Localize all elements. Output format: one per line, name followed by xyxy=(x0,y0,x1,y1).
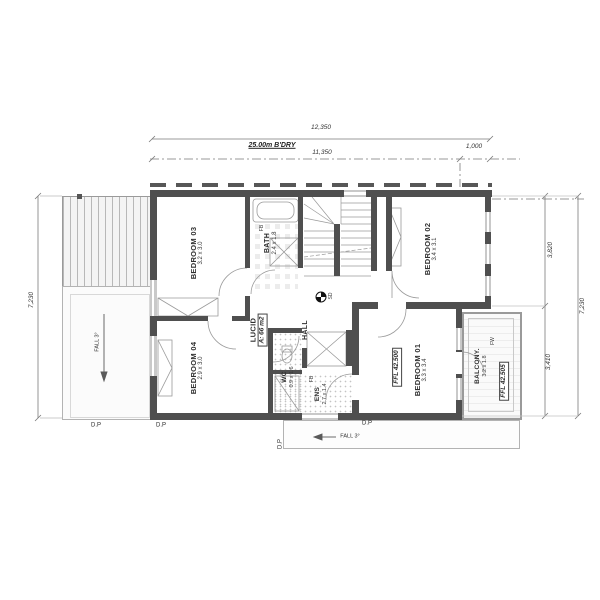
room-label-bedroom01: BEDROOM 01 3.3 x 3.4 xyxy=(413,344,429,397)
dim-top-inner-text: 11,350 xyxy=(312,149,331,157)
linework xyxy=(0,0,600,600)
bedroom04-size: 2.9 x 3.0 xyxy=(198,357,205,380)
wall-wc-right xyxy=(302,348,307,368)
dim-right-lower: 3,410 xyxy=(545,354,553,370)
window-top-stair xyxy=(344,190,366,197)
room-label-hall: HALL xyxy=(302,320,310,340)
bedroom02-name: BEDROOM 02 xyxy=(423,223,432,276)
balcony-note-label: FW xyxy=(490,337,496,345)
bedroom03-name: BEDROOM 03 xyxy=(189,227,198,280)
dim-right-total-text: 7,230 xyxy=(579,298,587,314)
ens-name: ENS xyxy=(314,387,322,401)
window-bedroom01-b xyxy=(456,378,462,400)
wall-ens-bedroom01-upper xyxy=(352,309,359,375)
downpipe-label-4: D.P xyxy=(277,439,284,449)
window-right-bedroom02-a xyxy=(485,212,491,232)
dim-top-offset: 1,000 xyxy=(466,143,482,151)
window-right-bedroom02-b xyxy=(485,244,491,264)
wall-bath-stair xyxy=(298,197,303,268)
ffl-balcony-text: FFL 42.505 xyxy=(499,361,509,400)
lucid-area-box: A: 66 m2 xyxy=(258,313,268,346)
downpipe-text-1: D.P xyxy=(91,422,101,429)
bath-fixture-label: FB xyxy=(259,225,265,231)
balcony-size: 3.2 x 1.8 xyxy=(482,355,489,376)
ens-fixture-label: FB xyxy=(309,376,315,382)
wall-stair-mid xyxy=(334,224,340,276)
deck-post xyxy=(77,194,82,199)
dim-right-upper: 3,820 xyxy=(547,242,555,258)
dim-top-total: 12,350 xyxy=(311,124,331,132)
ffl-balcony: FFL 42.505 xyxy=(499,361,509,400)
ffl-bedroom01: FFL 42.500 xyxy=(392,347,402,386)
wall-bedroom03-bedroom04-a xyxy=(150,316,208,321)
dim-top-offset-text: 1,000 xyxy=(466,143,482,151)
dim-right-upper-text: 3,820 xyxy=(547,242,555,258)
wc-name: WC xyxy=(281,371,289,382)
fall-bottom-text: FALL 3° xyxy=(340,434,359,441)
dim-left-total: 7,230 xyxy=(28,292,36,308)
wall-stair-right xyxy=(371,197,377,271)
wall-wc-top xyxy=(268,328,302,333)
smoke-detector-icon xyxy=(316,292,327,303)
bath-size: 2.4 x 1.8 xyxy=(273,231,280,254)
smoke-detector-label: SD xyxy=(328,293,334,300)
window-right-bedroom02-c xyxy=(485,276,491,296)
wall-ens-bedroom01-lower xyxy=(352,400,359,413)
room-label-balcony: BALCONY. 3.2 x 1.8 xyxy=(474,348,488,384)
fall-left-label: FALL 3° xyxy=(95,332,102,351)
bedroom01-size: 3.3 x 3.4 xyxy=(422,359,429,382)
fall-left-text: FALL 3° xyxy=(95,332,102,351)
ens-size: 2.7 x 1.4 xyxy=(322,383,329,404)
dim-boundary-text: 25.00m B'DRY xyxy=(248,142,295,150)
room-label-bath: BATH 2.4 x 1.8 xyxy=(264,231,280,254)
ffl-bedroom01-text: FFL 42.500 xyxy=(392,347,402,386)
dim-top-inner: 11,350 xyxy=(312,149,331,157)
fall-bottom-label: FALL 3° xyxy=(340,434,359,441)
bath-fixture-text: FB xyxy=(259,225,265,231)
bedroom03-size: 3.2 x 3.0 xyxy=(198,242,205,265)
downpipe-label-3: D.P xyxy=(362,420,372,427)
floor-plan: 12,350 25.00m B'DRY 11,350 1,000 7,230 3… xyxy=(0,0,600,600)
window-left-bedroom03 xyxy=(150,280,157,316)
ens-fixture-text: FB xyxy=(309,376,315,382)
dim-top-total-text: 12,350 xyxy=(311,124,331,132)
lucid-name: LUCID xyxy=(249,318,258,342)
dim-right-lower-text: 3,410 xyxy=(545,354,553,370)
bedroom01-name: BEDROOM 01 xyxy=(413,344,422,397)
room-label-bedroom02: BEDROOM 02 3.4 x 3.1 xyxy=(423,223,439,276)
downpipe-text-3: D.P xyxy=(362,420,372,427)
sd-text: SD xyxy=(328,293,334,300)
dim-boundary: 25.00m B'DRY xyxy=(248,142,295,150)
bath-name: BATH xyxy=(264,233,272,253)
wall-exterior-top xyxy=(150,190,492,197)
downpipe-label-1: D.P xyxy=(91,422,101,429)
downpipe-text-2: D.P xyxy=(156,422,166,429)
wall-hall-bedroom01-left xyxy=(352,302,378,309)
room-label-ens: ENS 2.7 x 1.4 xyxy=(314,383,328,404)
wall-bedroom03-bath xyxy=(245,197,250,268)
wc-size: 0.9 x 1.6 xyxy=(289,366,296,387)
balcony-name: BALCONY. xyxy=(474,348,482,384)
window-bedroom01-a xyxy=(456,328,462,350)
bedroom04-name: BEDROOM 04 xyxy=(189,342,198,395)
wall-bedroom03-bedroom04-b xyxy=(232,316,250,321)
eave-line xyxy=(150,183,492,187)
dim-left-total-text: 7,230 xyxy=(28,292,36,308)
wall-bedroom02-left xyxy=(386,197,392,271)
dim-right-total: 7,230 xyxy=(579,298,587,314)
downpipe-label-2: D.P xyxy=(156,422,166,429)
hall-name: HALL xyxy=(302,320,310,340)
window-left-bedroom04 xyxy=(150,336,157,376)
wall-hall-bedroom01-right xyxy=(406,302,491,309)
room-label-bedroom04: BEDROOM 04 2.9 x 3.0 xyxy=(189,342,205,395)
room-label-wc: WC 0.9 x 1.6 xyxy=(281,366,295,387)
bedroom02-size: 3.4 x 3.1 xyxy=(432,238,439,261)
room-label-bedroom03: BEDROOM 03 3.2 x 3.0 xyxy=(189,227,205,280)
downpipe-text-4: D.P xyxy=(277,439,284,449)
window-bottom-ens xyxy=(302,413,338,420)
room-label-lucid: LUCID A: 66 m2 xyxy=(249,313,268,346)
balcony-note-text: FW xyxy=(490,337,496,345)
